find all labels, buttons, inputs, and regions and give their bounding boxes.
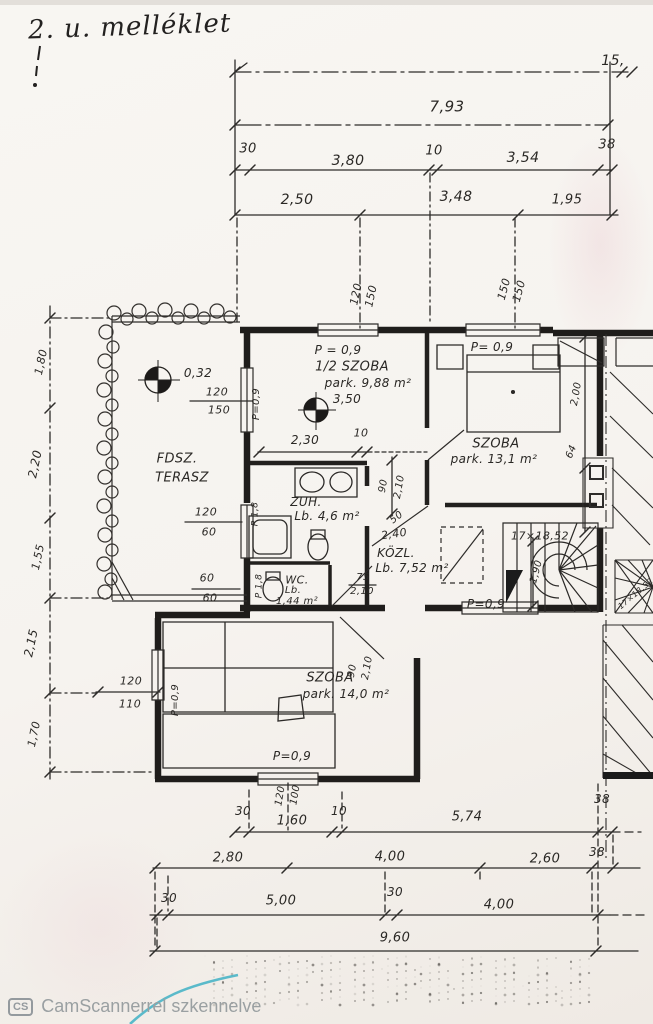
label-bc-30b: 30	[387, 886, 403, 898]
label-br-area: park. 14,0 m²	[303, 688, 390, 700]
label-dim-30a: 30	[239, 143, 256, 156]
label-fr-120b: 120	[195, 507, 217, 518]
label-ba-38: 38	[594, 793, 610, 805]
label-room-fdsz: FDSZ.	[157, 453, 198, 466]
label-r1-350: 3,50	[333, 393, 361, 405]
label-r1-area: park. 9,88 m²	[325, 377, 412, 389]
label-dim-250: 2,50	[281, 193, 314, 207]
label-r1-ptop: P = 0,9	[315, 344, 362, 356]
label-bc-500: 5,00	[266, 895, 297, 908]
label-dim-348: 3,48	[440, 190, 473, 204]
label-fr-60c: 60	[203, 593, 218, 604]
label-ba-574: 5,74	[452, 811, 483, 824]
floorplan-page: 2. u. melléklet 15,7,93303,80103,54382,5…	[0, 0, 653, 1024]
label-bd-960: 9,60	[380, 932, 411, 945]
label-zuh-name: ZUH.	[290, 496, 321, 508]
survey-markers	[138, 360, 336, 430]
label-fr-60a: 60	[202, 527, 217, 538]
label-r1-10: 10	[354, 428, 369, 439]
label-bc-400: 4,00	[484, 899, 515, 912]
label-br-pleft: P=0,9	[171, 684, 181, 716]
label-dim-354: 3,54	[507, 151, 540, 165]
label-r1-230: 2,30	[291, 434, 319, 446]
label-r1-pleft: P=0,9	[252, 388, 262, 420]
label-ba-160: 1,60	[277, 815, 308, 828]
label-bb-260: 2,60	[530, 853, 561, 866]
label-zuh-p18: P 1,8	[252, 502, 261, 527]
label-wc-lb: Lb.	[285, 586, 301, 596]
camscanner-watermark: CS CamScannerrel szkennelve	[8, 996, 261, 1017]
label-dim-10a: 10	[425, 145, 442, 158]
label-st-label: 17×18,52	[511, 531, 569, 542]
label-r1-name: 1/2 SZOBA	[315, 361, 389, 374]
label-bb-38: 38	[589, 846, 605, 858]
label-fr-120a: 120	[206, 387, 228, 398]
label-k-area: Lb. 7,52 m²	[375, 562, 448, 574]
camscanner-watermark-text: CamScannerrel szkennelve	[41, 996, 261, 1017]
label-r2-area: park. 13,1 m²	[451, 453, 538, 465]
label-survey-032: 0,32	[184, 367, 212, 379]
label-st-p09: P=0,9	[467, 598, 505, 610]
label-r2-name: SZOBA	[472, 438, 519, 451]
label-page-num: 15,	[601, 54, 624, 68]
label-wc-p18: P 1,8	[256, 574, 265, 599]
label-dim-195: 1,95	[552, 194, 583, 207]
label-wc-75: 75	[356, 573, 370, 583]
label-k-240: 2,40	[380, 527, 407, 542]
label-k-name: KÖZL.	[377, 547, 415, 559]
label-dim-38a: 38	[598, 139, 615, 152]
label-room-terasz: TERASZ	[155, 472, 209, 485]
camscanner-badge-icon: CS	[8, 998, 33, 1016]
label-bb-400: 4,00	[375, 851, 406, 864]
label-bb-280: 2,80	[213, 852, 244, 865]
label-br-pbottom: P=0,9	[273, 750, 311, 762]
label-r2-ptop: P= 0,9	[471, 341, 514, 353]
label-fr-150a: 150	[208, 405, 230, 416]
label-wc-name: WC.	[285, 575, 308, 586]
label-wc-210: 2,10	[350, 587, 374, 597]
label-ba-30: 30	[235, 805, 251, 817]
label-dim-793: 7,93	[430, 100, 465, 115]
label-ba-10: 10	[331, 805, 347, 817]
label-bl-110: 110	[119, 699, 141, 710]
label-fr-60b: 60	[200, 573, 215, 584]
label-dim-380: 3,80	[332, 154, 365, 168]
label-zuh-area: Lb. 4,6 m²	[294, 510, 359, 522]
label-bl-120: 120	[120, 676, 142, 687]
label-wc-area: 1,44 m²	[276, 597, 318, 607]
label-bc-30a: 30	[161, 892, 177, 904]
